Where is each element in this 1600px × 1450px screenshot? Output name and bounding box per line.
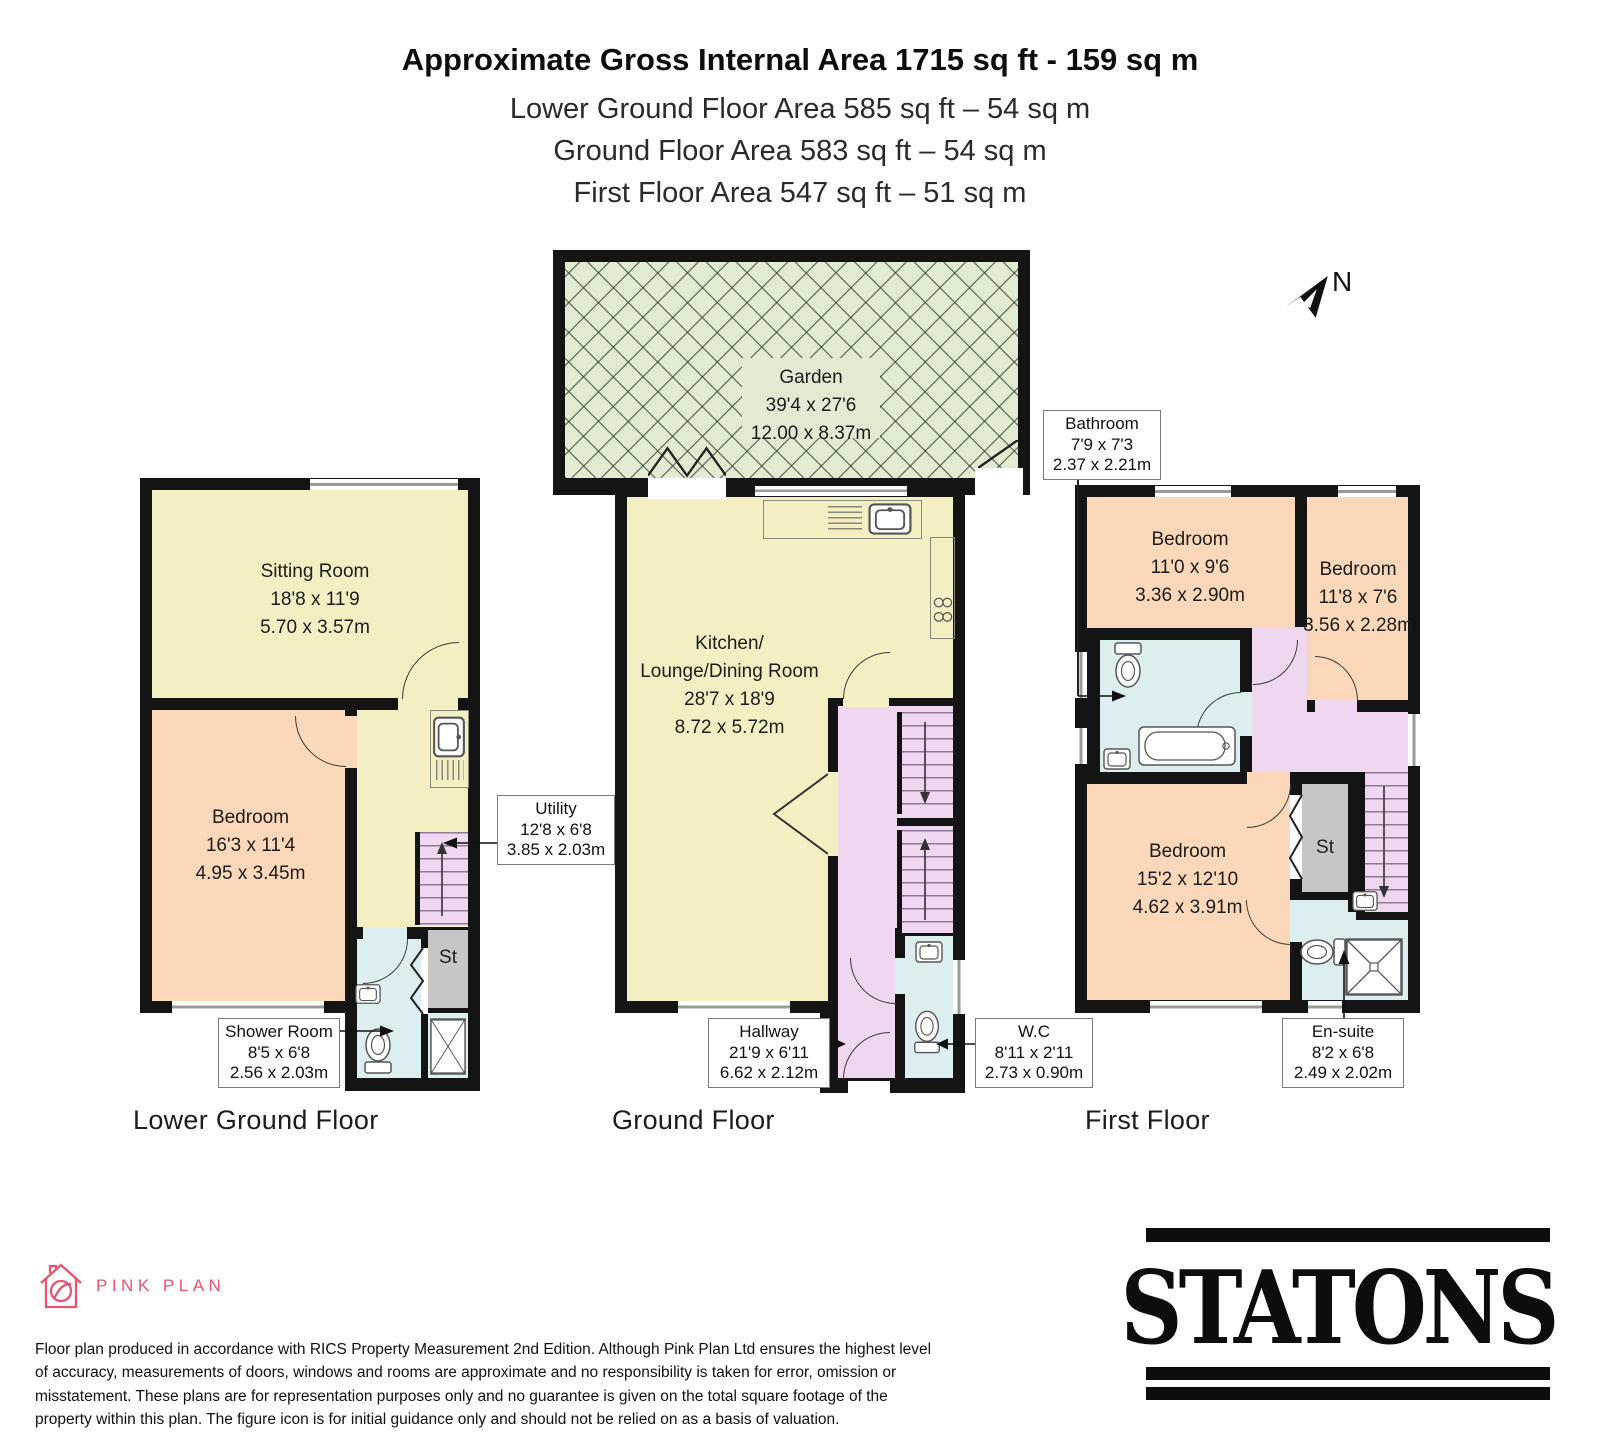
garden-door-opening-single (975, 468, 1023, 495)
area-line-ground: Ground Floor Area 583 sq ft – 54 sq m (0, 130, 1600, 172)
bathtub-icon (1138, 726, 1236, 766)
stairs-down-arrow-icon-gf (919, 722, 931, 804)
floor-name-first: First Floor (1085, 1105, 1210, 1136)
window-ff-right (1408, 714, 1420, 766)
window-ff-bottom-1 (1150, 1001, 1262, 1013)
wc-leader-arrow (936, 1037, 976, 1051)
door-opening-bedroom-lgf (345, 716, 357, 768)
pink-plan-brand: PINK PLAN (96, 1276, 225, 1296)
north-label: N (1332, 266, 1352, 298)
window-lgf-bottom (172, 1001, 324, 1013)
kitchen-sink-icon (868, 503, 912, 535)
page-title: Approximate Gross Internal Area 1715 sq … (0, 42, 1600, 78)
stairs-ff-bottom-wall (1356, 912, 1408, 920)
floor-name-lower-ground: Lower Ground Floor (133, 1105, 379, 1136)
utility-leader-arrow (443, 836, 499, 850)
agency-logo-bar-bottom-2 (1146, 1387, 1550, 1400)
door-opening-bedroom-ff-2 (1315, 700, 1357, 712)
door-opening-sitting (398, 698, 458, 710)
stairs-up-arrow-icon (436, 842, 448, 916)
header: Approximate Gross Internal Area 1715 sq … (0, 42, 1600, 214)
room-label-bedroom-ff-3: Bedroom 15'2 x 12'10 4.62 x 3.91m (1090, 838, 1285, 922)
ensuite-shower-icon (1345, 938, 1403, 996)
storage-ff-bottom-wall (1302, 892, 1348, 900)
bathroom-leader-arrow (1078, 689, 1126, 703)
shower-leader-arrow (334, 1024, 394, 1038)
kitchen-drainer-icon (828, 506, 862, 532)
garden-double-doors-icon (648, 444, 726, 478)
area-line-lower-ground: Lower Ground Floor Area 585 sq ft – 54 s… (0, 88, 1600, 130)
window-ff-top-2 (1338, 486, 1396, 497)
front-door-opening (848, 1081, 890, 1093)
shower-tray-icon (430, 1018, 466, 1075)
callout-wc: W.C 8'11 x 2'11 2.73 x 0.90m (975, 1018, 1093, 1088)
stairs-up-arrow-icon-gf (919, 838, 931, 920)
pink-plan-logo-icon (38, 1260, 84, 1310)
room-label-garden: Garden 39'4 x 27'6 12.00 x 8.37m (745, 364, 877, 448)
shower-sink-icon (355, 982, 381, 1006)
stairs-down-arrow-icon-ff (1378, 786, 1390, 898)
room-label-kitchen-lounge: Kitchen/ Lounge/Dining Room 28'7 x 18'9 … (637, 630, 822, 742)
ensuite-toilet-icon (1306, 928, 1338, 976)
window-lgf-top (310, 479, 458, 490)
room-label-bedroom-lgf: Bedroom 16'3 x 11'4 4.95 x 3.45m (158, 804, 343, 888)
wc-side-wall (895, 935, 905, 1081)
room-label-storage-lgf: St (430, 944, 466, 972)
room-label-bedroom-ff-1: Bedroom 11'0 x 9'6 3.36 x 2.90m (1095, 526, 1285, 610)
wc-sink-icon (915, 940, 943, 964)
garden-single-door-icon (978, 440, 1022, 468)
bathroom-sink-icon (1103, 748, 1131, 770)
door-opening-bedroom-ff-3 (1247, 772, 1290, 784)
utility-sink-icon (433, 716, 465, 758)
floor-name-ground: Ground Floor (612, 1105, 775, 1136)
room-label-storage-ff: St (1306, 834, 1344, 862)
callout-hallway: Hallway 21'9 x 6'11 6.62 x 2.12m (708, 1018, 830, 1088)
callout-bathroom: Bathroom 7'9 x 7'3 2.37 x 2.21m (1043, 410, 1161, 480)
callout-ensuite: En-suite 8'2 x 6'8 2.49 x 2.02m (1282, 1018, 1404, 1088)
door-opening-bathroom (1240, 692, 1252, 736)
area-line-first: First Floor Area 547 sq ft – 51 sq m (0, 172, 1600, 214)
north-arrow-icon (1286, 276, 1330, 320)
room-label-sitting-room: Sitting Room 18'8 x 11'9 5.70 x 3.57m (215, 558, 415, 642)
door-opening-kitchen-hall (843, 698, 889, 707)
utility-drainer-icon (436, 760, 464, 780)
callout-utility: Utility 12'8 x 6'8 3.85 x 2.03m (497, 795, 615, 865)
window-gf-bottom (678, 1001, 790, 1013)
room-landing (1307, 712, 1408, 772)
door-opening-shower (363, 927, 407, 939)
ensuite-sink-icon (1352, 890, 1378, 912)
bathroom-leader-line (1077, 478, 1079, 696)
wc-door-opening (895, 958, 905, 994)
window-wc-right (953, 960, 965, 1014)
folding-door-icon-lgf (409, 948, 425, 1014)
agency-logo-text: STATONS (1118, 1238, 1558, 1380)
window-ff-left-2 (1075, 728, 1087, 764)
folding-door-icon-ff (1288, 795, 1304, 879)
stairs-divider (897, 818, 953, 826)
garden-door-opening-double (648, 478, 726, 499)
agency-logo-bar-bottom-1 (1146, 1367, 1550, 1380)
ensuite-leader-arrow (1337, 950, 1351, 1018)
door-opening-double-doors (828, 772, 838, 856)
room-label-bedroom-ff-2: Bedroom 11'8 x 7'6 3.56 x 2.28m (1296, 556, 1420, 640)
hob-icon (931, 592, 954, 638)
double-doors-icon (770, 772, 828, 856)
bathroom-toilet-icon (1112, 642, 1144, 690)
disclaimer-text: Floor plan produced in accordance with R… (35, 1338, 947, 1431)
callout-shower-room: Shower Room 8'5 x 6'8 2.56 x 2.03m (218, 1018, 340, 1088)
window-ff-top-1 (1155, 486, 1231, 497)
window-gf-top (755, 486, 907, 496)
agency-logo: STATONS (1118, 1212, 1558, 1412)
